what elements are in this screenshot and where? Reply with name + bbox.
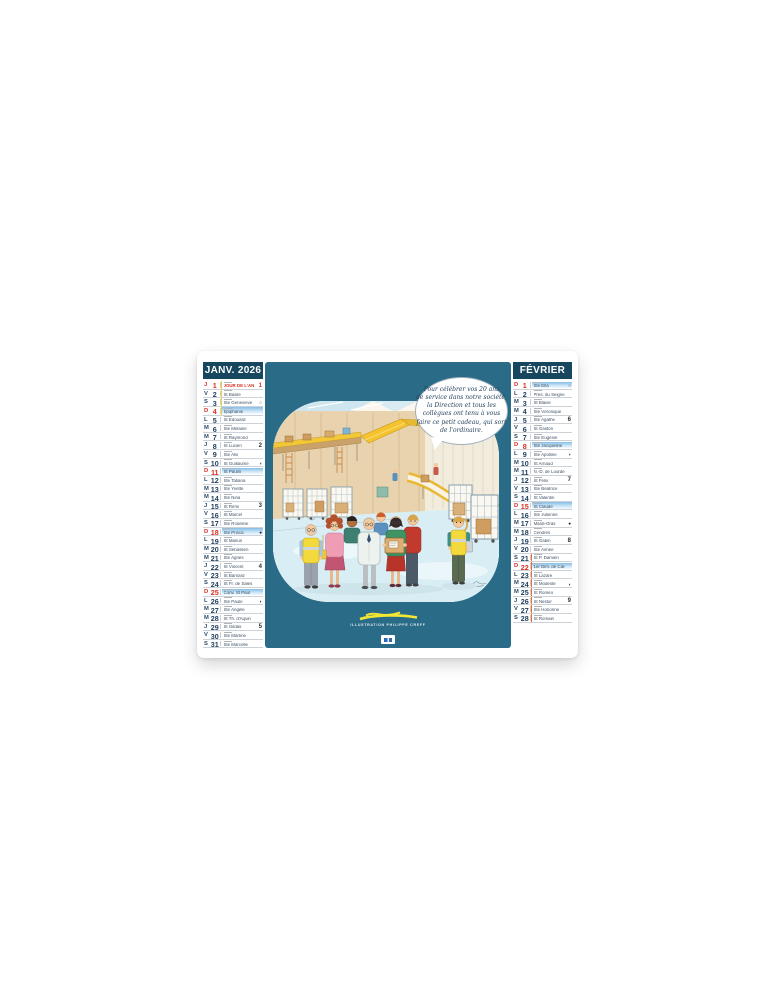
week-number: 7: [568, 477, 571, 483]
week-number: 4: [259, 564, 262, 570]
school-holiday-bar: [221, 407, 223, 415]
distant-worker: [393, 469, 398, 481]
sun-times-line: [224, 494, 232, 495]
day-names: Ste Aimée: [534, 546, 566, 553]
day-letter: M: [204, 615, 209, 621]
day-letter: M: [514, 529, 519, 535]
day-names: St Barnard: [224, 572, 257, 579]
day-row: S 24 St Fr. de Sales: [203, 579, 263, 588]
moon-phase-icon: ◖: [568, 452, 571, 457]
saint-name: St Gildas: [224, 625, 257, 630]
day-row: D 1 Ste Ella ○: [513, 381, 572, 390]
day-row: M 17 Mardi-Gras ●: [513, 519, 572, 528]
sun-times-line: [534, 416, 542, 417]
sun-times-line: [224, 485, 232, 486]
day-row: V 23 St Barnard: [203, 571, 263, 580]
day-row: M 28 St Th. d'Aquin: [203, 614, 263, 623]
sun-times-line: [224, 641, 232, 642]
day-letter: M: [204, 425, 209, 431]
day-names: Ste Alix: [224, 451, 257, 458]
sun-times-line: [534, 580, 542, 581]
day-row: J 19 St Gabin 8: [513, 536, 572, 545]
day-row: J 12 St Félix 7: [513, 476, 572, 485]
sun-times-line: [534, 615, 542, 616]
moon-phase-icon: ◗: [568, 582, 571, 587]
saint-name: Ste Tatiana: [224, 479, 257, 484]
day-names: St Modeste: [534, 580, 566, 587]
day-letter: L: [514, 511, 518, 517]
sun-times-line: [224, 632, 232, 633]
day-letter: M: [514, 580, 519, 586]
sun-times-line: [534, 485, 542, 486]
day-row: J 26 St Nestor 9: [513, 597, 572, 606]
saint-name: Ste Aimée: [534, 548, 566, 553]
day-names: St Vincent: [224, 563, 257, 570]
sun-times-line: [224, 468, 232, 469]
day-letter: M: [204, 434, 209, 440]
saint-name: Épiphanie: [224, 410, 257, 415]
day-letter: L: [514, 391, 518, 397]
saint-name: Ste Mélaine: [224, 427, 257, 432]
day-names: Conv. St Paul: [224, 589, 257, 596]
sun-times-line: [224, 572, 232, 573]
sun-times-line: [224, 615, 232, 616]
sun-times-line: [534, 511, 542, 512]
roll-cages: [283, 487, 352, 520]
saint-name: Ste Marcelle: [224, 643, 257, 648]
day-row: L 12 Ste Tatiana: [203, 476, 263, 485]
saint-name: St Barnard: [224, 574, 257, 579]
day-row: J 5 Ste Agathe 6: [513, 416, 572, 425]
day-letter: V: [204, 391, 208, 397]
day-letter: J: [514, 537, 517, 543]
saint-name: St Édouard: [224, 418, 257, 423]
day-names: Ste Martine: [224, 632, 257, 639]
sun-times-line: [534, 520, 542, 521]
day-names: Ste Mélaine: [224, 425, 257, 432]
day-letter: M: [204, 486, 209, 492]
day-row: S 7 Ste Eugénie: [513, 433, 572, 442]
sun-times-line: [534, 537, 542, 538]
sun-times-line: [224, 511, 232, 512]
day-row: V 16 St Marcel: [203, 510, 263, 519]
day-names: St Basile: [224, 390, 257, 397]
saint-name: St Marcel: [224, 513, 257, 518]
day-row: M 14 Ste Nina: [203, 493, 263, 502]
school-holiday-bar: [221, 398, 223, 406]
school-holiday-bar: [531, 605, 533, 613]
day-names: St Marius: [224, 537, 257, 544]
illustrator-signature-logo: [356, 610, 420, 623]
day-row: M 6 Ste Mélaine: [203, 424, 263, 433]
school-holiday-bar: [531, 571, 533, 579]
day-names: St Fr. de Sales: [224, 580, 257, 587]
publisher-mini-label: [381, 635, 395, 644]
speech-bubble-text: Pour célébrer vos 20 ans de service dans…: [416, 378, 507, 435]
sun-times-line: [534, 408, 542, 409]
saint-name: St Romain: [534, 617, 566, 622]
day-letter: J: [204, 382, 207, 388]
sun-times-line: [534, 572, 542, 573]
day-letter: J: [514, 417, 517, 423]
sun-times-line: [224, 442, 232, 443]
day-row: L 2 Prés. du Seigneur: [513, 390, 572, 399]
day-names: St Nestor: [534, 597, 566, 604]
month-header-february: FÉVRIER: [513, 362, 572, 379]
sun-times-line: [224, 399, 232, 400]
day-names: Ste Agathe: [534, 416, 566, 423]
day-row: J 15 St Rémi 3: [203, 502, 263, 511]
day-letter: D: [204, 529, 208, 535]
day-row: M 7 St Raymond: [203, 433, 263, 442]
sun-times-line: [224, 434, 232, 435]
day-names: St Raymond: [224, 434, 257, 441]
distant-worker: [434, 463, 439, 475]
day-row: M 27 Ste Angèle: [203, 605, 263, 614]
sun-times-line: [534, 606, 542, 607]
day-letter: J: [514, 598, 517, 604]
day-row: S 31 Ste Marcelle: [203, 640, 263, 649]
day-row: V 27 Ste Honorine: [513, 605, 572, 614]
day-names: Ste Geneviève: [224, 399, 257, 406]
sun-times-line: [534, 477, 542, 478]
day-names: 1er Dim. de Carême: [534, 563, 566, 570]
day-letter: S: [514, 555, 518, 561]
day-row: L 19 St Marius: [203, 536, 263, 545]
day-names: Ste Eugénie: [534, 434, 566, 441]
saint-name: St Valentin: [534, 496, 566, 501]
saint-name: 1er Dim. de Carême: [534, 565, 566, 570]
sun-times-line: [534, 434, 542, 435]
saint-name: St P. Damien: [534, 556, 566, 561]
day-letter: J: [514, 477, 517, 483]
sun-times-line: [224, 425, 232, 426]
saint-name: Ste Agathe: [534, 418, 566, 423]
sun-times-line: [534, 442, 542, 443]
week-number: 8: [568, 538, 571, 544]
day-letter: D: [514, 382, 518, 388]
saint-name: St Raymond: [224, 436, 257, 441]
sun-times-line: [224, 503, 232, 504]
day-row: S 3 Ste Geneviève ○: [203, 398, 263, 407]
sun-times-line: [224, 580, 232, 581]
day-letter: D: [204, 589, 208, 595]
day-row: L 26 Ste Paule ◗: [203, 597, 263, 606]
day-letter: L: [204, 598, 208, 604]
sun-times-line: [224, 382, 232, 383]
day-letter: M: [204, 555, 209, 561]
day-row: D 25 Conv. St Paul: [203, 588, 263, 597]
day-names: St Gabin: [534, 537, 566, 544]
day-names: St Édouard: [224, 416, 257, 423]
moon-phase-icon: ○: [259, 400, 262, 405]
sun-times-line: [224, 390, 232, 391]
saint-name: St Roméo: [534, 591, 566, 596]
day-row: M 13 Ste Yvette: [203, 485, 263, 494]
day-letter: D: [514, 442, 518, 448]
day-row: J 22 St Vincent 4: [203, 562, 263, 571]
day-names: Cendres: [534, 528, 566, 535]
sun-times-line: [534, 425, 542, 426]
day-names: St Lazare: [534, 572, 566, 579]
day-names: St Félix: [534, 477, 566, 484]
saint-name: Ste Yvette: [224, 487, 257, 492]
day-letter: D: [204, 408, 208, 414]
saint-name: St Arnaud: [534, 462, 566, 467]
day-row: M 10 St Arnaud: [513, 459, 572, 468]
saint-name: St Claude: [534, 505, 566, 510]
saint-name: St Vincent: [224, 565, 257, 570]
day-letter: L: [514, 572, 518, 578]
day-names: St Blaise: [534, 399, 566, 406]
saint-name: St Marius: [224, 539, 257, 544]
saint-name: St Gaston: [534, 427, 566, 432]
saint-name: Cendres: [534, 531, 566, 536]
day-names: Mardi-Gras: [534, 520, 566, 527]
saint-name: St Modeste: [534, 582, 566, 587]
day-row: L 9 Ste Apolline ◖: [513, 450, 572, 459]
day-names: St Romain: [534, 615, 566, 622]
week-number: 6: [568, 417, 571, 423]
saint-name: Ste Paule: [224, 600, 257, 605]
day-names: St Rémi: [224, 503, 257, 510]
saint-name: Ste Ella: [534, 384, 566, 389]
day-row: L 23 St Lazare: [513, 571, 572, 580]
day-letter: L: [204, 417, 208, 423]
saint-name: St Félix: [534, 479, 566, 484]
day-row: M 3 St Blaise: [513, 398, 572, 407]
day-row: S 17 Ste Roseline: [203, 519, 263, 528]
saint-name: St Lazare: [534, 574, 566, 579]
day-row: M 18 Cendres: [513, 528, 572, 537]
day-letter: S: [514, 494, 518, 500]
saint-name: Ste Nina: [224, 496, 257, 501]
day-letter: M: [514, 468, 519, 474]
day-names: Ste Marcelle: [224, 641, 257, 648]
day-row: D 8 Ste Jacqueline: [513, 441, 572, 450]
day-letter: S: [204, 520, 208, 526]
day-row: M 4 Ste Véronique: [513, 407, 572, 416]
day-names: Ste Béatrice: [534, 485, 566, 492]
week-number: 9: [568, 598, 571, 604]
day-names: St Valentin: [534, 494, 566, 501]
day-letter: M: [204, 606, 209, 612]
day-letter: S: [204, 399, 208, 405]
day-names: Ste Prisca: [224, 528, 257, 535]
day-names: Ste Nina: [224, 494, 257, 501]
day-letter: S: [514, 434, 518, 440]
saint-name: Ste Véronique: [534, 410, 566, 415]
day-names: JOUR DE L'AN: [224, 382, 257, 389]
saint-name: St Th. d'Aquin: [224, 617, 257, 622]
day-letter: J: [204, 624, 207, 630]
sun-times-line: [224, 597, 232, 598]
saint-name: Ste Honorine: [534, 608, 566, 613]
moon-phase-icon: ○: [568, 383, 571, 388]
day-names: St Gaston: [534, 425, 566, 432]
sun-times-line: [224, 623, 232, 624]
day-letter: V: [514, 486, 518, 492]
day-number: 28: [520, 614, 531, 623]
day-letter: M: [204, 494, 209, 500]
saint-name: N.-D. de Lourdes: [534, 470, 566, 475]
day-row: M 24 St Modeste ◗: [513, 579, 572, 588]
day-letter: L: [204, 537, 208, 543]
sun-times-line: [224, 589, 232, 590]
day-names: Prés. du Seigneur: [534, 390, 566, 397]
saint-name: Ste Jacqueline: [534, 444, 566, 449]
day-names: Épiphanie: [224, 408, 257, 415]
sun-times-line: [224, 451, 232, 452]
day-letter: D: [514, 503, 518, 509]
saint-name: Prés. du Seigneur: [534, 393, 566, 398]
saint-name: Ste Alix: [224, 453, 257, 458]
day-names: St Guillaume: [224, 459, 257, 466]
day-names: St Sébastien: [224, 546, 257, 553]
day-row: D 22 1er Dim. de Carême: [513, 562, 572, 571]
day-letter: M: [514, 520, 519, 526]
day-row: V 6 St Gaston: [513, 424, 572, 433]
day-letter: V: [204, 451, 208, 457]
day-row: L 16 Ste Julienne: [513, 510, 572, 519]
sun-times-line: [534, 563, 542, 564]
day-rows-january: J 1 JOUR DE L'AN 1 V 2 St Basile S 3 Ste…: [203, 381, 263, 648]
sun-times-line: [534, 503, 542, 504]
saint-name: Ste Béatrice: [534, 487, 566, 492]
day-letter: J: [204, 503, 207, 509]
sun-times-line: [534, 589, 542, 590]
saint-name: Ste Prisca: [224, 531, 257, 536]
sun-times-line: [224, 459, 232, 460]
saint-name: St Nestor: [534, 600, 566, 605]
day-row: V 9 Ste Alix: [203, 450, 263, 459]
week-number: 5: [259, 624, 262, 630]
week-number: 3: [259, 503, 262, 509]
day-names: Ste Roseline: [224, 520, 257, 527]
day-letter: M: [514, 399, 519, 405]
sun-times-line: [534, 390, 542, 391]
gift-box: [385, 538, 404, 553]
day-row: L 5 St Édouard: [203, 416, 263, 425]
saint-name: St Gabin: [534, 539, 566, 544]
week-number: 1: [259, 383, 262, 389]
saint-name: St Lucien: [224, 444, 257, 449]
day-names: N.-D. de Lourdes: [534, 468, 566, 475]
day-letter: M: [514, 589, 519, 595]
month-header-january: JANV. 2026: [203, 362, 263, 379]
month-column-january: JANV. 2026 J 1 JOUR DE L'AN 1 V 2 St Bas…: [203, 362, 263, 648]
saint-name: Ste Roseline: [224, 522, 257, 527]
saint-name: St Sébastien: [224, 548, 257, 553]
saint-name: St Rémi: [224, 505, 257, 510]
sun-times-line: [534, 554, 542, 555]
day-names: St Marcel: [224, 511, 257, 518]
day-letter: J: [204, 563, 207, 569]
day-letter: V: [204, 632, 208, 638]
month-column-february: FÉVRIER D 1 Ste Ella ○ L 2 Prés. du Seig…: [513, 362, 572, 623]
saint-name: St Paulin: [224, 470, 257, 475]
school-holiday-bar: [531, 588, 533, 596]
day-letter: S: [204, 641, 208, 647]
day-names: Ste Julienne: [534, 511, 566, 518]
sun-times-line: [534, 494, 542, 495]
day-row: D 11 St Paulin: [203, 467, 263, 476]
moon-phase-icon: ◗: [259, 599, 262, 604]
publisher-logo-icon: [384, 638, 392, 642]
speech-bubble: Pour célébrer vos 20 ans de service dans…: [415, 377, 508, 445]
day-row: S 14 St Valentin: [513, 493, 572, 502]
day-letter: M: [204, 546, 209, 552]
day-names: Ste Tatiana: [224, 477, 257, 484]
sun-times-line: [534, 459, 542, 460]
day-letter: D: [204, 468, 208, 474]
day-names: Ste Véronique: [534, 408, 566, 415]
day-letter: L: [514, 451, 518, 457]
day-row: V 2 St Basile: [203, 390, 263, 399]
saint-name: Ste Julienne: [534, 513, 566, 518]
saint-name: Ste Agnès: [224, 556, 257, 561]
day-row: J 8 St Lucien 2: [203, 441, 263, 450]
day-names: St Gildas: [224, 623, 257, 630]
day-letter: S: [204, 460, 208, 466]
saint-name: Conv. St Paul: [224, 591, 257, 596]
page: JANV. 2026 J 1 JOUR DE L'AN 1 V 2 St Bas…: [0, 0, 771, 1000]
day-row: S 10 St Guillaume ◖: [203, 459, 263, 468]
day-names: St Claude: [534, 503, 566, 510]
sun-times-line: [224, 528, 232, 529]
day-letter: V: [514, 606, 518, 612]
saint-name: St Basile: [224, 393, 257, 398]
sun-times-line: [534, 597, 542, 598]
day-letter: M: [514, 460, 519, 466]
day-row: J 1 JOUR DE L'AN 1: [203, 381, 263, 390]
saint-name: Ste Martine: [224, 634, 257, 639]
day-row: D 15 St Claude: [513, 502, 572, 511]
day-names: St Roméo: [534, 589, 566, 596]
sun-times-line: [224, 606, 232, 607]
day-letter: V: [204, 572, 208, 578]
day-row: V 20 Ste Aimée: [513, 545, 572, 554]
day-names: Ste Agnès: [224, 554, 257, 561]
day-number: 31: [210, 640, 221, 649]
day-letter: L: [204, 477, 208, 483]
saint-name: St Guillaume: [224, 462, 257, 467]
sun-times-line: [534, 546, 542, 547]
day-row: M 20 St Sébastien: [203, 545, 263, 554]
day-letter: V: [204, 511, 208, 517]
school-holiday-bar: [531, 554, 533, 562]
week-number: 2: [259, 443, 262, 449]
day-names: St Arnaud: [534, 459, 566, 466]
day-row: M 21 Ste Agnès: [203, 554, 263, 563]
sun-times-line: [224, 537, 232, 538]
sun-times-line: [534, 468, 542, 469]
moon-phase-icon: ●: [568, 521, 571, 526]
sun-times-line: [224, 477, 232, 478]
saint-name: Ste Apolline: [534, 453, 566, 458]
day-names: St Th. d'Aquin: [224, 615, 257, 622]
day-names: Ste Yvette: [224, 485, 257, 492]
day-names: Ste Jacqueline: [534, 442, 566, 449]
saint-name: JOUR DE L'AN: [224, 384, 257, 389]
day-row: D 18 Ste Prisca ●: [203, 528, 263, 537]
sun-times-line: [224, 563, 232, 564]
day-names: Ste Paule: [224, 597, 257, 604]
day-letter: J: [204, 442, 207, 448]
saint-name: Ste Geneviève: [224, 401, 257, 406]
day-letter: D: [514, 563, 518, 569]
sun-times-line: [534, 382, 542, 383]
